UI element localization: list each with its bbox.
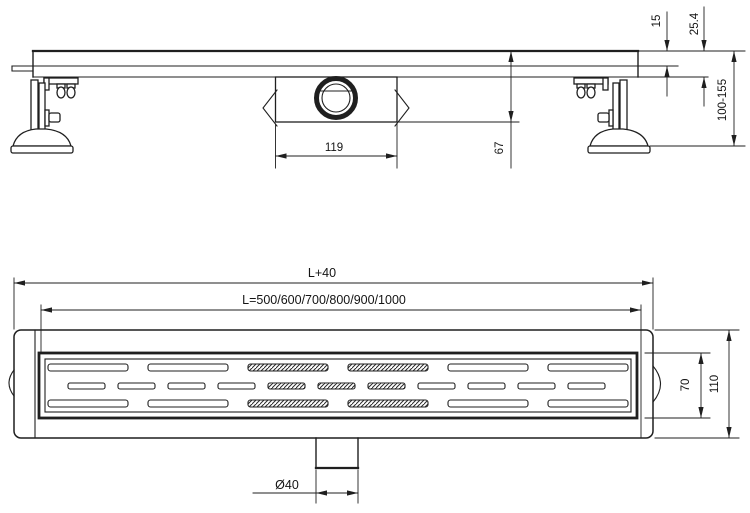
dim-label-l-plus-40: L+40 [308,266,336,280]
dim-grate-edge: 15 [651,12,670,96]
dim-trap-depth: 67 [399,51,519,168]
dim-label-119: 119 [325,142,343,154]
slot [68,383,105,389]
drain-trap [263,77,409,126]
dim-overall-width: 110 [655,330,739,438]
side-view: 119 67 15 25.4 [11,7,745,168]
outlet-pipe [316,438,358,468]
slot [168,383,205,389]
dim-label-100-155: 100-155 [717,79,729,121]
slot-hatched [318,383,355,389]
slot [48,364,128,371]
dim-outlet-diameter: Ø40 [253,470,358,503]
right-end-outlet-arc [653,366,661,402]
dim-label-70: 70 [680,379,692,392]
drawing-canvas: 119 67 15 25.4 [0,0,750,513]
plan-view: L+40 L=500/600/700/800/900/1000 70 1 [9,266,739,503]
slot-hatched [348,400,428,407]
channel-profile [12,51,745,77]
drain-technical-drawing: 119 67 15 25.4 [0,0,750,513]
dim-label-25-4: 25.4 [689,12,701,35]
slot-hatched [268,383,305,389]
slot [518,383,555,389]
slot [118,383,155,389]
slot [448,400,528,407]
slot [218,383,255,389]
slot [468,383,505,389]
slot [148,364,228,371]
slot [148,400,228,407]
dim-trap-width: 119 [276,124,398,168]
slot [418,383,455,389]
dim-grate-width: 70 [645,353,710,418]
slot-hatched [248,400,328,407]
dim-label-dia-40: Ø40 [275,478,299,492]
slot [568,383,605,389]
dim-label-length-series: L=500/600/700/800/900/1000 [242,293,406,307]
slot [548,364,628,371]
dim-label-110: 110 [709,375,721,393]
dim-channel-edge: 25.4 [689,7,707,106]
dim-label-15: 15 [651,15,663,28]
slot-hatched [348,364,428,371]
left-foot [11,78,78,153]
right-foot [574,78,650,153]
slot [48,400,128,407]
dim-label-67: 67 [494,142,506,155]
dim-height-range: 100-155 [650,51,745,146]
slot [548,400,628,407]
slot-hatched [248,364,328,371]
slot [448,364,528,371]
slot-hatched [368,383,405,389]
